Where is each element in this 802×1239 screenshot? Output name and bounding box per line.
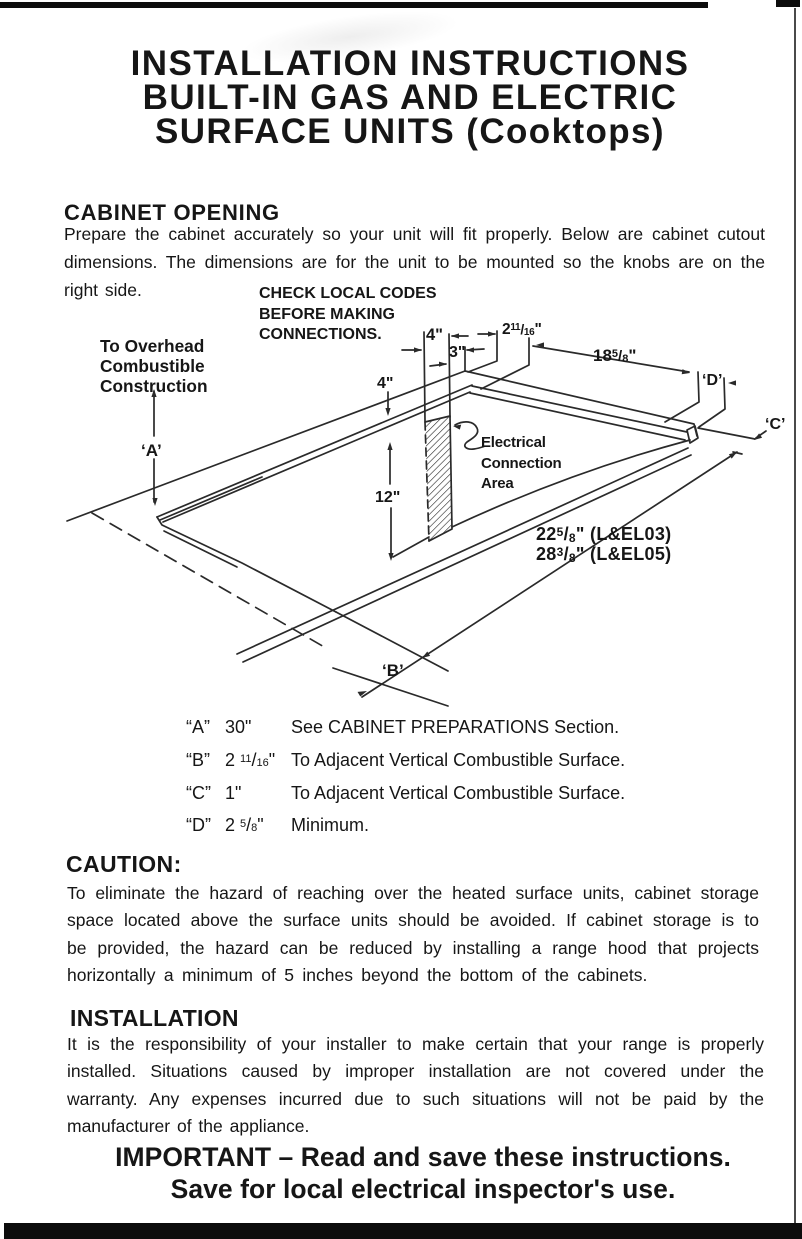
svg-text:225/8" (L&EL03): 225/8" (L&EL03) bbox=[536, 524, 671, 545]
svg-text:283/8" (L&EL05): 283/8" (L&EL05) bbox=[536, 544, 671, 565]
svg-text:211/16": 211/16" bbox=[502, 321, 542, 338]
svg-text:185/8": 185/8" bbox=[593, 346, 636, 365]
svg-text:‘A’: ‘A’ bbox=[141, 441, 162, 460]
svg-text:4": 4" bbox=[377, 375, 393, 392]
svg-text:3": 3" bbox=[449, 344, 465, 361]
svg-text:‘B’: ‘B’ bbox=[382, 661, 404, 680]
svg-text:4": 4" bbox=[426, 326, 443, 344]
svg-text:‘C’: ‘C’ bbox=[765, 416, 785, 433]
svg-text:‘D’: ‘D’ bbox=[702, 372, 722, 389]
svg-text:12": 12" bbox=[375, 489, 400, 506]
